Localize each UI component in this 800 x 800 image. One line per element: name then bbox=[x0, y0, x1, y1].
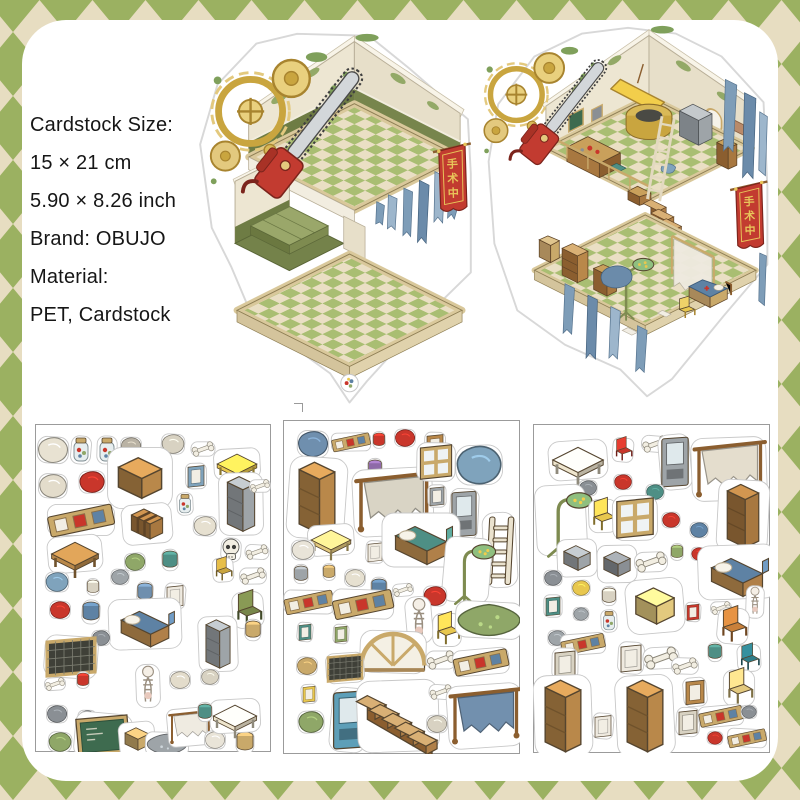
banner-char-1: 手 bbox=[743, 194, 754, 208]
pot-sticker bbox=[601, 586, 616, 606]
jar-sticker bbox=[70, 435, 92, 465]
pot-sticker bbox=[322, 563, 336, 581]
screen-sticker bbox=[43, 634, 99, 680]
bone-sticker bbox=[634, 551, 668, 573]
blob-sticker bbox=[110, 569, 129, 586]
product-image: Cardstock Size: 15 × 21 cm 5.90 × 8.26 i… bbox=[0, 0, 800, 800]
blob-sticker bbox=[124, 552, 146, 571]
table-sticker bbox=[209, 698, 261, 738]
chest-sticker bbox=[120, 502, 173, 546]
stairs-sticker bbox=[356, 679, 440, 754]
blob-sticker bbox=[297, 430, 330, 458]
blob-sticker bbox=[38, 473, 68, 499]
blob-sticker bbox=[614, 474, 633, 490]
frame-sticker bbox=[592, 712, 615, 739]
frame-sticker bbox=[682, 677, 708, 708]
bone-sticker bbox=[44, 677, 66, 691]
blob-sticker bbox=[741, 705, 757, 718]
rack-sticker bbox=[445, 682, 520, 750]
frame-sticker bbox=[296, 622, 313, 642]
pot-sticker bbox=[293, 564, 308, 584]
frames-sticker bbox=[727, 728, 767, 748]
cab-sticker bbox=[614, 674, 676, 753]
cab-sticker bbox=[716, 479, 770, 554]
lamp-sticker bbox=[441, 536, 496, 606]
bone-sticker bbox=[671, 657, 699, 675]
blob-sticker bbox=[291, 540, 315, 560]
frame-sticker bbox=[185, 463, 206, 489]
info-line-material-label: Material: bbox=[30, 258, 176, 296]
pot-sticker bbox=[161, 549, 179, 572]
frames-sticker bbox=[332, 589, 395, 620]
figure-sticker bbox=[135, 664, 160, 708]
info-line-size-inch: 5.90 × 8.26 inch bbox=[30, 182, 176, 220]
bone-sticker bbox=[245, 544, 270, 560]
blob-sticker bbox=[344, 569, 365, 587]
blob-sticker bbox=[394, 429, 415, 447]
frame-sticker bbox=[617, 641, 645, 674]
blob-sticker bbox=[707, 731, 724, 746]
sticker-sheet-1 bbox=[35, 424, 271, 752]
blob-sticker bbox=[544, 570, 563, 586]
jar-sticker bbox=[176, 492, 193, 515]
banner-char-3: 中 bbox=[744, 223, 755, 237]
blob-sticker bbox=[573, 607, 589, 621]
sticker-sheet-2 bbox=[283, 420, 520, 754]
box-sticker bbox=[108, 447, 173, 508]
ban_char-2: 术 bbox=[743, 208, 755, 222]
box-sticker bbox=[597, 545, 637, 583]
pot-sticker bbox=[372, 431, 385, 448]
bone-sticker bbox=[239, 567, 266, 585]
bone-sticker bbox=[426, 650, 456, 670]
frame-sticker bbox=[333, 624, 350, 644]
banner-char-1: 手 bbox=[447, 157, 459, 171]
blob-sticker bbox=[427, 715, 448, 733]
info-line-size-cm: 15 × 21 cm bbox=[30, 144, 176, 182]
blob-sticker bbox=[169, 671, 190, 689]
frame-sticker bbox=[301, 684, 318, 704]
blob-sticker bbox=[47, 731, 72, 752]
frame-sticker bbox=[675, 707, 700, 737]
empty-room-cardstock: 手 术 中 bbox=[192, 28, 477, 418]
blob-sticker bbox=[193, 515, 218, 536]
frames-sticker bbox=[284, 590, 335, 615]
box-sticker bbox=[624, 576, 686, 635]
banner-char-2: 术 bbox=[446, 171, 459, 185]
blob-sticker bbox=[571, 580, 590, 597]
pot-sticker bbox=[81, 599, 101, 624]
pot-sticker bbox=[197, 702, 212, 722]
blob-sticker bbox=[37, 436, 70, 465]
blob-sticker bbox=[455, 444, 503, 485]
chair-sticker bbox=[737, 643, 762, 672]
jar-sticker bbox=[600, 609, 617, 632]
tip-sticker bbox=[341, 374, 358, 391]
vend-sticker bbox=[657, 433, 693, 491]
frame-sticker bbox=[428, 485, 447, 508]
blob-sticker bbox=[296, 656, 318, 675]
sticker-sheet-3 bbox=[533, 424, 770, 753]
window-sticker bbox=[612, 495, 658, 541]
frames-sticker bbox=[452, 647, 510, 678]
banner-char-3: 中 bbox=[448, 186, 460, 200]
chair-sticker bbox=[612, 436, 635, 462]
arch-sticker bbox=[359, 630, 426, 674]
product-info: Cardstock Size: 15 × 21 cm 5.90 × 8.26 i… bbox=[30, 106, 176, 334]
bone-sticker bbox=[191, 441, 215, 457]
furnished-room-cardstock: 手 术 中 bbox=[478, 24, 778, 402]
frames-sticker bbox=[331, 433, 371, 453]
blob-sticker bbox=[298, 711, 325, 734]
chair-sticker bbox=[716, 606, 750, 646]
blob-sticker bbox=[46, 705, 67, 723]
blob-sticker bbox=[79, 471, 106, 494]
pot-sticker bbox=[86, 578, 99, 595]
blob-sticker bbox=[690, 522, 709, 538]
frame-sticker bbox=[685, 602, 702, 622]
chair-sticker bbox=[723, 668, 754, 706]
bed-sticker bbox=[108, 598, 183, 651]
pot-sticker bbox=[707, 642, 722, 662]
rug-sticker bbox=[454, 600, 520, 640]
pot-sticker bbox=[76, 671, 89, 688]
pot-sticker bbox=[236, 730, 254, 752]
blob-sticker bbox=[662, 512, 681, 528]
info-line-brand: Brand: OBUJO bbox=[30, 220, 176, 258]
window-sticker bbox=[416, 442, 455, 481]
pot-sticker bbox=[670, 543, 683, 560]
chair-sticker bbox=[212, 556, 234, 582]
frame-sticker bbox=[544, 595, 562, 617]
bone-sticker bbox=[392, 583, 414, 597]
info-line-size-label: Cardstock Size: bbox=[30, 106, 176, 144]
info-line-material: PET, Cardstock bbox=[30, 296, 176, 334]
cab-sticker bbox=[197, 616, 238, 673]
blob-sticker bbox=[45, 572, 69, 592]
blob-sticker bbox=[49, 600, 71, 619]
screen-sticker bbox=[325, 652, 365, 685]
bone-sticker bbox=[249, 479, 270, 493]
cab-sticker bbox=[533, 674, 593, 753]
frames-sticker bbox=[47, 504, 115, 537]
box-sticker bbox=[557, 539, 598, 578]
pot-sticker bbox=[244, 619, 261, 641]
frames-sticker bbox=[698, 704, 744, 729]
blob-sticker bbox=[200, 669, 219, 686]
sheet-corner-mark bbox=[294, 403, 303, 412]
